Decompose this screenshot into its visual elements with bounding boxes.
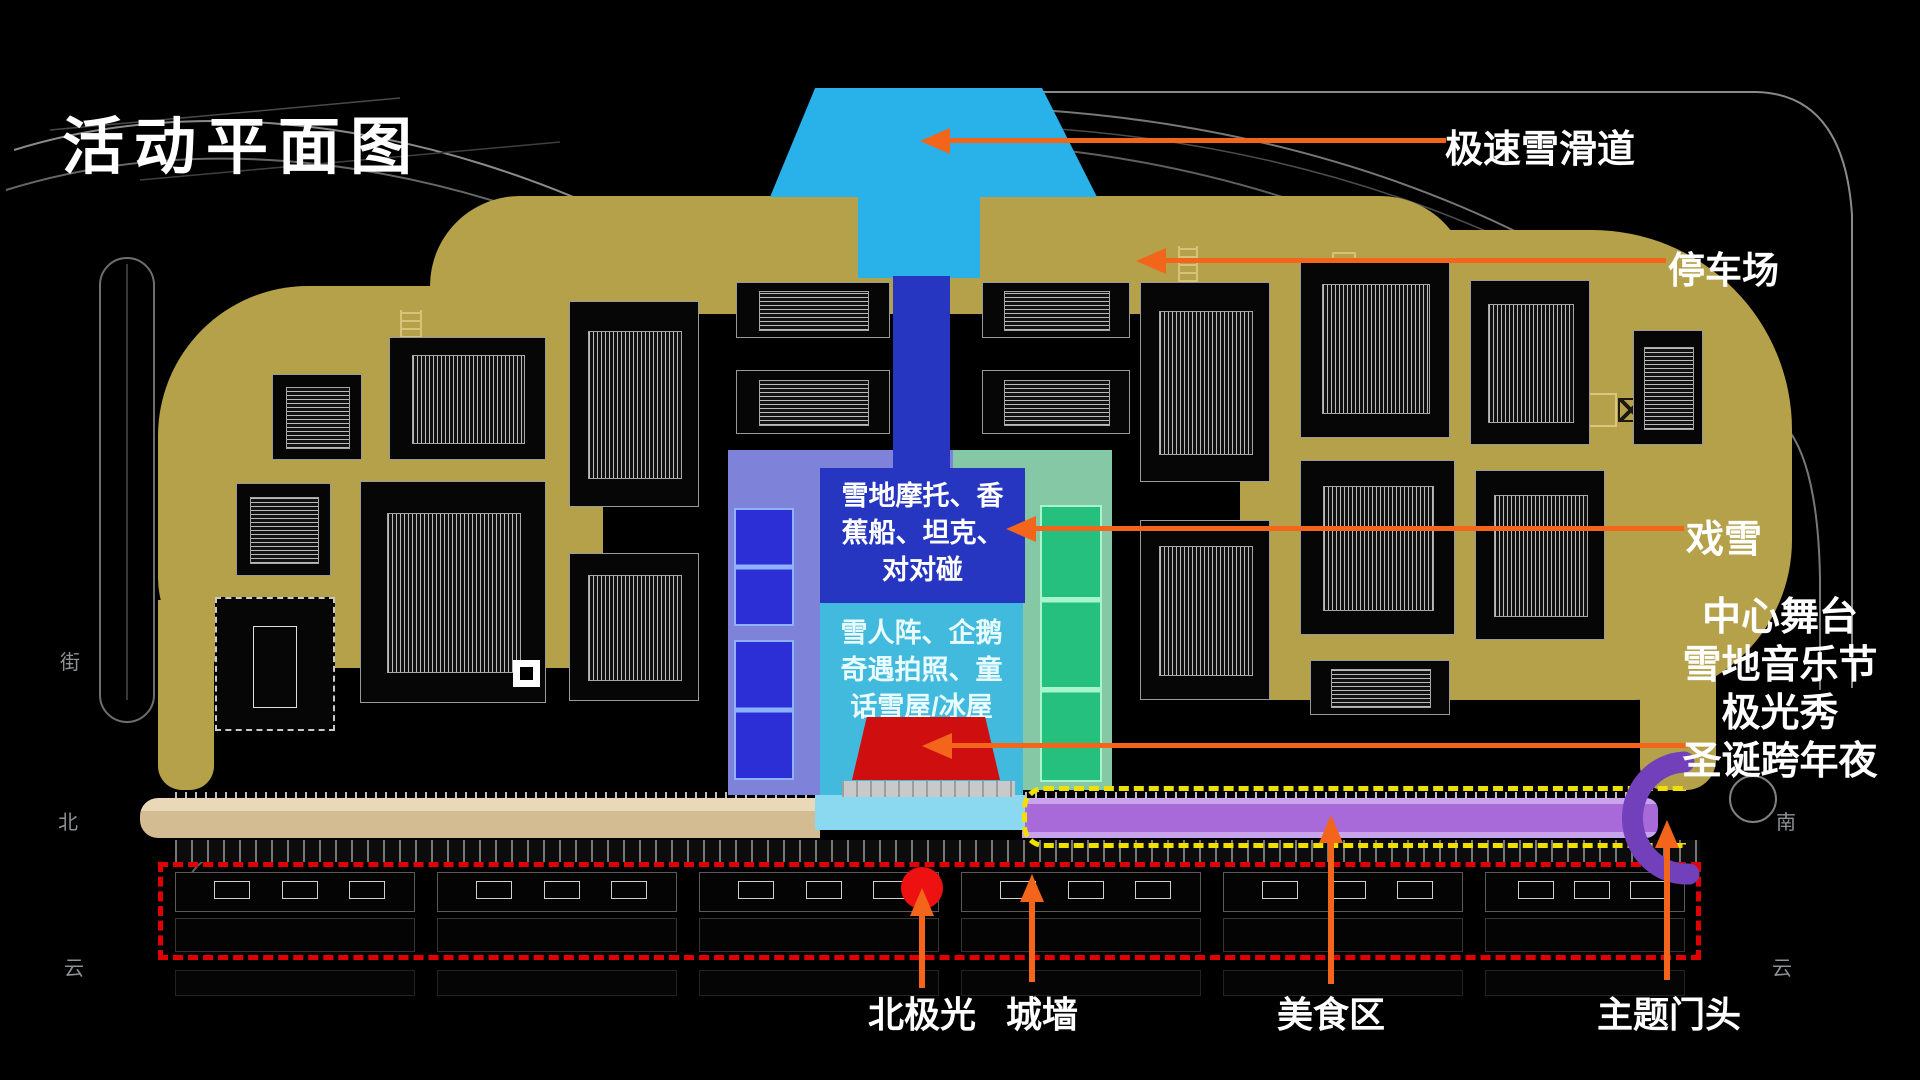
street-text-north: 北 [58, 806, 78, 835]
label-wall: 城墙 [1004, 986, 1080, 1038]
page-title: 活动平面图 [62, 96, 422, 186]
label-gate: 主题门头 [1596, 986, 1742, 1038]
zone-rides-line: 蕉船、坦克、 [820, 515, 1025, 552]
zone-green-top [953, 450, 1112, 468]
parking-arrow-line [1162, 258, 1666, 263]
street-text-cloud-left: 云 [64, 952, 84, 981]
plan-canvas: 雪地摩托、香 蕉船、坦克、 对对碰 雪人阵、企鹅 奇遇拍照、童 话雪屋/冰屋 [0, 0, 1920, 1080]
street-text-cloud-right: 云 [1772, 952, 1792, 981]
gate-arrow-line [1664, 844, 1670, 980]
parking-arrow-head [1136, 248, 1166, 274]
food-street-outline [1022, 786, 1686, 848]
zone-rides-line: 对对碰 [820, 552, 1025, 589]
label-snowplay: 戏雪 [1686, 508, 1762, 563]
label-aurora: 北极光 [866, 986, 978, 1038]
slide-arrow-head [920, 128, 950, 154]
label-stage-line: 圣诞跨年夜 [1650, 738, 1910, 786]
snowplay-arrow-line [1032, 526, 1684, 531]
ice-rink-block [734, 640, 794, 780]
label-slide: 极速雪滑道 [1445, 118, 1635, 173]
zone-rides-box: 雪地摩托、香 蕉船、坦克、 对对碰 [820, 468, 1025, 603]
zone-photo-line: 奇遇拍照、童 [820, 652, 1023, 689]
shop-row-segment [437, 970, 677, 996]
street-text-left: 街 [60, 646, 80, 675]
slide-arrow-line [946, 138, 1446, 143]
shore-strip [815, 795, 1025, 830]
stage-platform [842, 781, 1015, 797]
snowplay-arrow-head [1006, 516, 1036, 542]
snow-slide-stem [858, 196, 980, 278]
label-stage-block: 中心舞台 雪地音乐节 极光秀 圣诞跨年夜 [1650, 594, 1910, 786]
stage-arrow-head [922, 733, 952, 759]
label-parking: 停车场 [1668, 240, 1779, 294]
zone-photo-line: 雪人阵、企鹅 [820, 615, 1023, 652]
stage-arrow-line [948, 743, 1688, 748]
shop-row-segment [961, 970, 1201, 996]
aurora-arrow-line [919, 912, 925, 988]
ice-rink-block [734, 508, 794, 626]
green-rink-block [1040, 505, 1102, 782]
wall-arrow-line [1029, 898, 1035, 982]
label-food: 美食区 [1276, 986, 1386, 1038]
snow-slide-run [893, 276, 950, 470]
shop-row-segment [175, 970, 415, 996]
label-stage-line: 雪地音乐节 [1650, 642, 1910, 690]
food-arrow-line [1328, 839, 1334, 984]
label-stage-line: 中心舞台 [1650, 594, 1910, 642]
zone-rides-line: 雪地摩托、香 [820, 478, 1025, 515]
label-stage-line: 极光秀 [1650, 690, 1910, 738]
street-text-south: 南 [1776, 806, 1796, 835]
